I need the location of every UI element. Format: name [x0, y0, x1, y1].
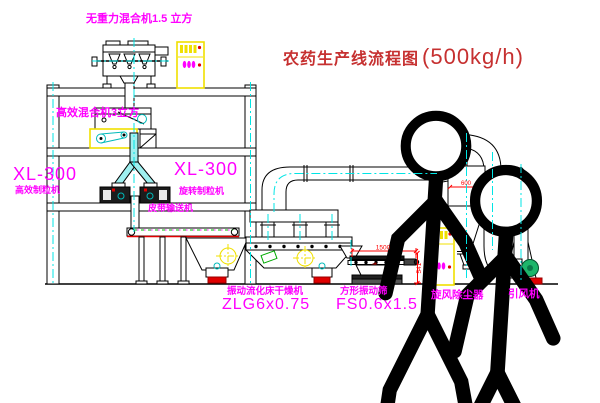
cabinet1-indicator-light-top	[198, 46, 201, 49]
cabinet2-indicator-light-mid	[448, 265, 451, 268]
label-cyclone: 旋风除尘器	[431, 290, 484, 301]
granulator-discharge-chute	[131, 196, 139, 228]
dim-sieve-height: 541	[416, 262, 423, 273]
exhaust-duct	[262, 165, 437, 210]
label-gravity-free-mixer: 无重力混合机1.5 立方	[86, 14, 192, 25]
label-square-sieve-model: FS0.6x1.5	[336, 297, 418, 313]
label-fluid-bed-dryer-model: ZLG6x0.75	[222, 297, 310, 313]
flow-diagram-canvas: 1500 541 600 农药生产线流程图 (500kg/h) 无重力混合机1.…	[0, 0, 600, 403]
granulator-right	[140, 183, 170, 203]
dim-cyclone-diameter: 600	[461, 181, 472, 187]
label-granulator-left-name: 高效制粒机	[15, 186, 60, 195]
label-draft-fan: 引风机	[508, 289, 540, 300]
cabinet1-indicator-light-mid	[198, 63, 201, 66]
label-granulator-left-model: XL-300	[13, 165, 77, 183]
control-cabinet-1	[177, 42, 204, 88]
label-granulator-mid-model: XL-300	[174, 160, 238, 178]
granulator-left	[100, 183, 130, 203]
y-chute	[114, 162, 156, 184]
diagram-title-text: 农药生产线流程图	[283, 45, 419, 69]
diagram-title: 农药生产线流程图 (500kg/h)	[283, 44, 524, 70]
diagram-title-capacity: (500kg/h)	[422, 44, 524, 70]
label-belt-conveyor: 皮带输送机	[148, 204, 193, 213]
fluid-bed-dryer	[186, 210, 362, 283]
gravity-free-mixer	[92, 41, 168, 108]
label-high-eff-mixer: 高效混合机3立方	[56, 108, 139, 119]
dim-sieve-length: 1500	[376, 245, 391, 252]
label-granulator-mid-name: 旋转制粒机	[179, 187, 224, 196]
